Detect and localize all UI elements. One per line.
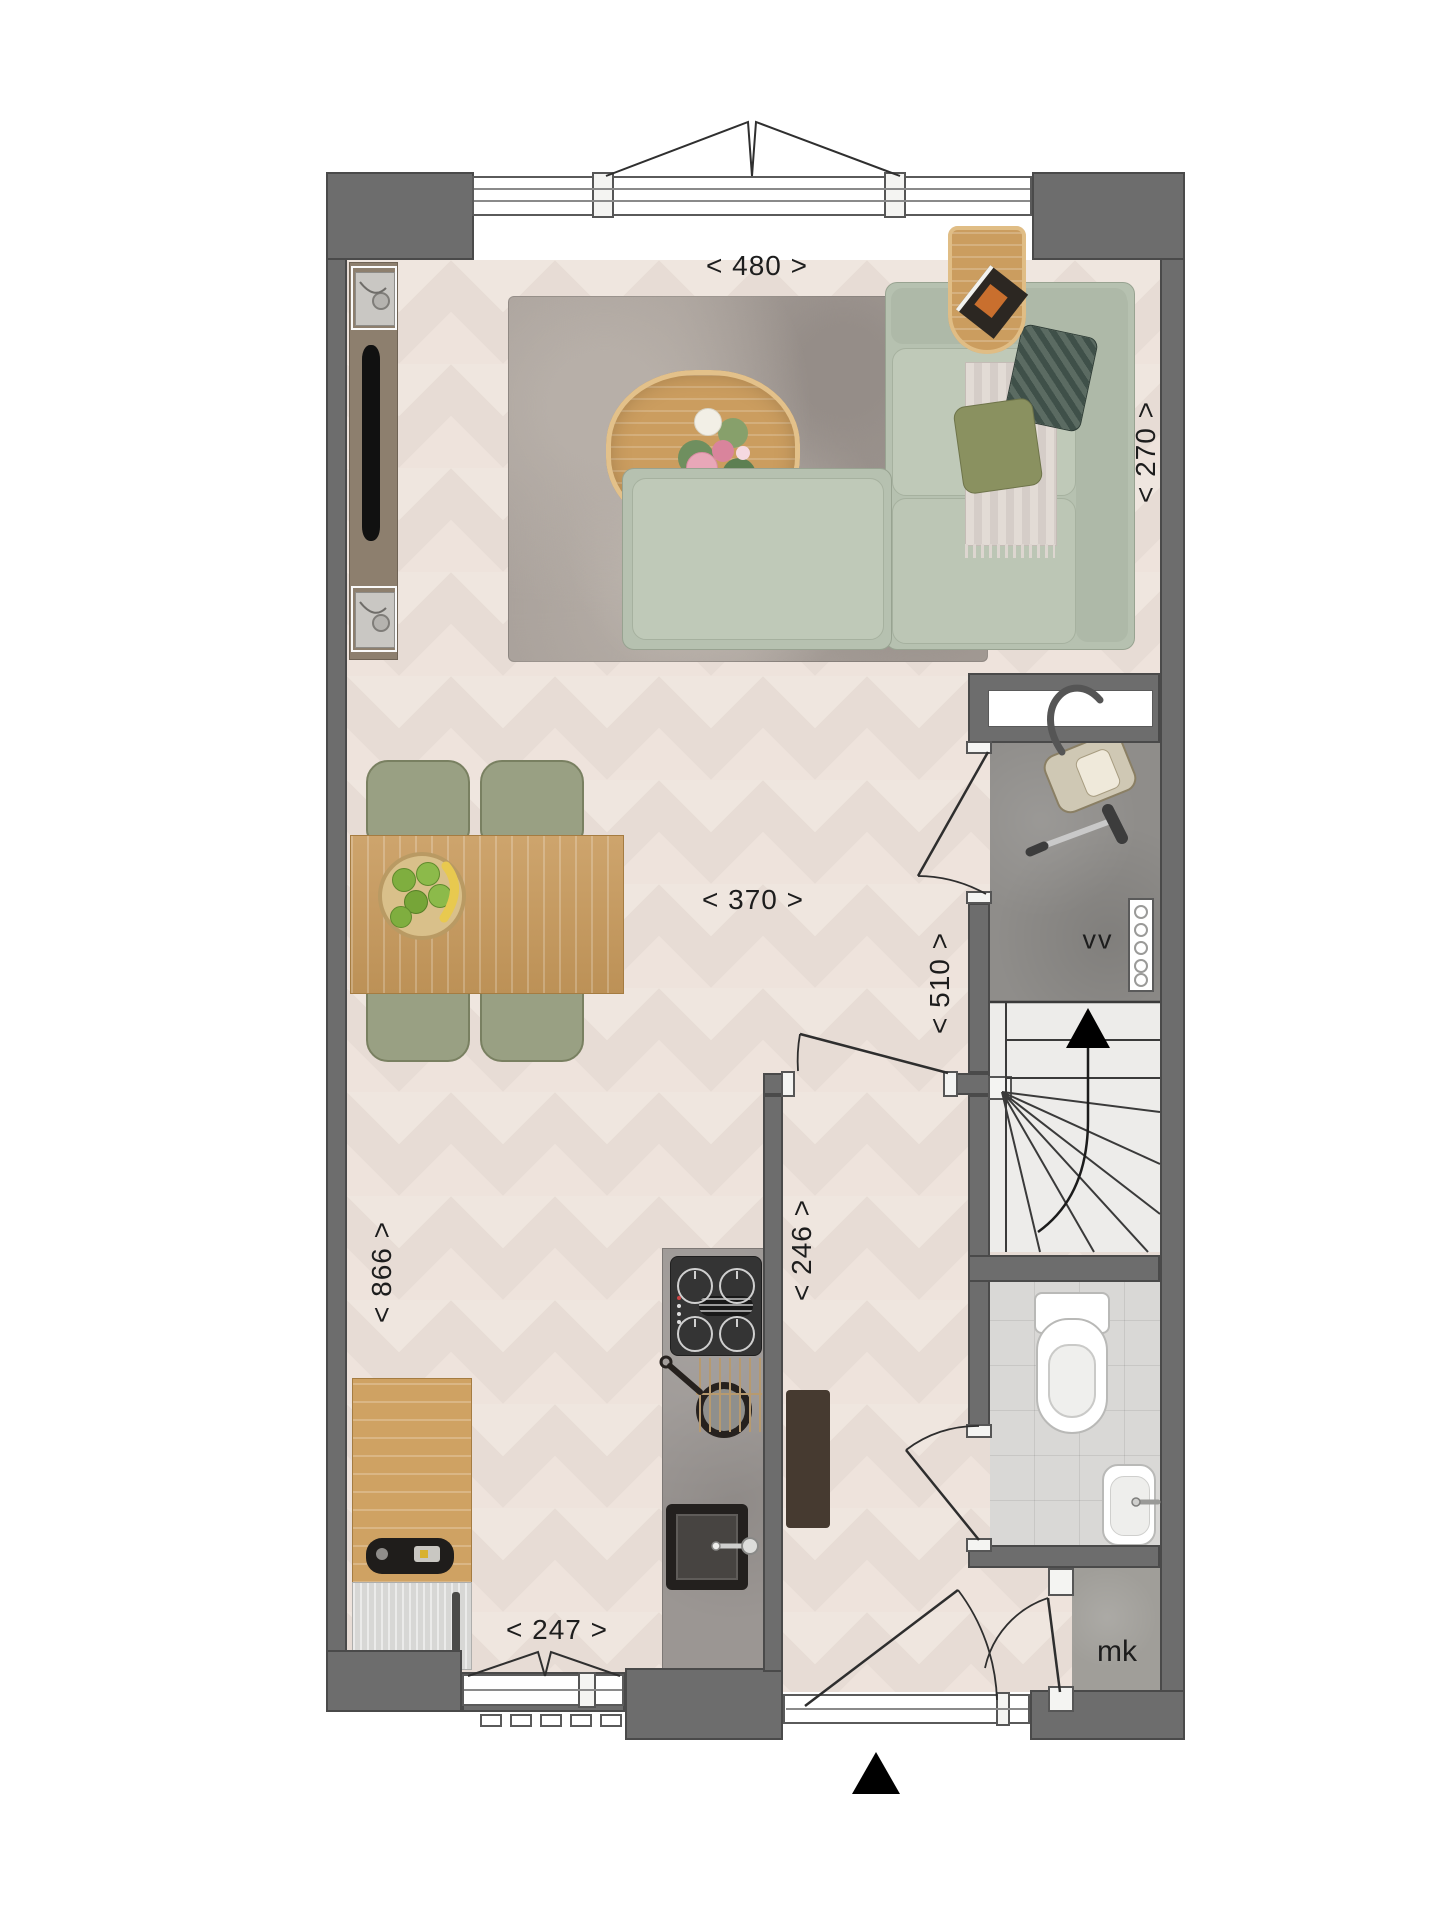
dimension-label-866: < 866 > <box>366 1221 398 1323</box>
wall-top-right-block <box>1032 172 1185 260</box>
tech-door-post <box>966 891 992 904</box>
speaker-cone-bottom <box>372 614 390 632</box>
kitchen-sink-basin <box>676 1514 738 1580</box>
pan-icon <box>696 1382 752 1438</box>
vent-grille <box>570 1714 592 1727</box>
sofa-chaise-cushion <box>632 478 884 640</box>
mk-door-post <box>1048 1568 1074 1596</box>
wall-left <box>326 258 347 1652</box>
apple-icon <box>428 884 452 908</box>
hall-door-post <box>943 1071 958 1097</box>
room-label-mk: mk <box>1097 1635 1137 1669</box>
window-top-mullion-left <box>592 172 614 218</box>
wall-bottom-left-block <box>326 1650 462 1712</box>
sofa-blanket-fringe <box>965 544 1055 558</box>
coffee-machine-knob <box>376 1548 388 1560</box>
meter-panel <box>1128 898 1154 992</box>
oven-handle <box>452 1592 460 1656</box>
speaker-cone-top <box>372 292 390 310</box>
wall-stairs-toilet <box>968 1255 1160 1282</box>
tech-wall-niche <box>988 690 1153 727</box>
front-door-sill <box>783 1694 1030 1724</box>
vent-grille <box>600 1714 622 1727</box>
dining-chair <box>480 760 584 844</box>
toilet-door-post <box>966 1538 992 1552</box>
sofa-pillow-olive <box>952 397 1043 495</box>
mk-door-post <box>1048 1686 1074 1712</box>
window-top <box>472 176 1032 216</box>
stair-newel <box>988 1076 1012 1100</box>
window-top-mullion-right <box>884 172 906 218</box>
apple-icon <box>416 862 440 886</box>
wall-living-tech <box>968 903 990 1073</box>
coat-rack <box>786 1390 830 1528</box>
toilet-seat <box>1048 1344 1096 1418</box>
dimension-label-370: < 370 > <box>702 884 804 916</box>
apple-icon <box>392 868 416 892</box>
toilet-door-post <box>966 1424 992 1438</box>
dimension-label-247: < 247 > <box>506 1614 608 1646</box>
dining-chair <box>366 760 470 844</box>
dimension-label-246: < 246 > <box>786 1199 818 1301</box>
floor-plan: < 480 > < 270 > < 370 > < 510 > < 866 > … <box>0 0 1440 1920</box>
dimension-label-510: < 510 > <box>924 932 956 1034</box>
wall-kitchen-stub <box>625 1668 783 1740</box>
dimension-label-270: < 270 > <box>1130 401 1162 503</box>
hand-basin-bowl <box>1110 1476 1150 1536</box>
north-arrow-icon <box>852 1752 900 1794</box>
wall-top-left-block <box>326 172 474 260</box>
staircase-floor <box>990 1002 1160 1252</box>
apple-icon <box>390 906 412 928</box>
tv-icon <box>362 345 380 541</box>
cooktop-vent <box>699 1296 753 1316</box>
wall-hall-right-piece <box>955 1073 990 1095</box>
tech-door-post <box>966 741 992 754</box>
wall-toilet-bottom <box>968 1545 1160 1568</box>
room-label-vv: vv <box>1083 925 1114 956</box>
vent-grille <box>510 1714 532 1727</box>
dimension-label-480: < 480 > <box>706 250 808 282</box>
mk-closet-floor <box>1072 1568 1160 1692</box>
window-bottom-left <box>462 1674 624 1706</box>
vent-grille <box>480 1714 502 1727</box>
hall-door-post <box>781 1071 795 1097</box>
front-door-divider <box>996 1692 1010 1726</box>
coffee-machine-light <box>420 1550 428 1558</box>
window-bottom-mullion <box>578 1672 596 1708</box>
wall-right <box>1160 258 1185 1740</box>
vent-grille <box>540 1714 562 1727</box>
wall-kitchen-hall <box>763 1095 783 1672</box>
